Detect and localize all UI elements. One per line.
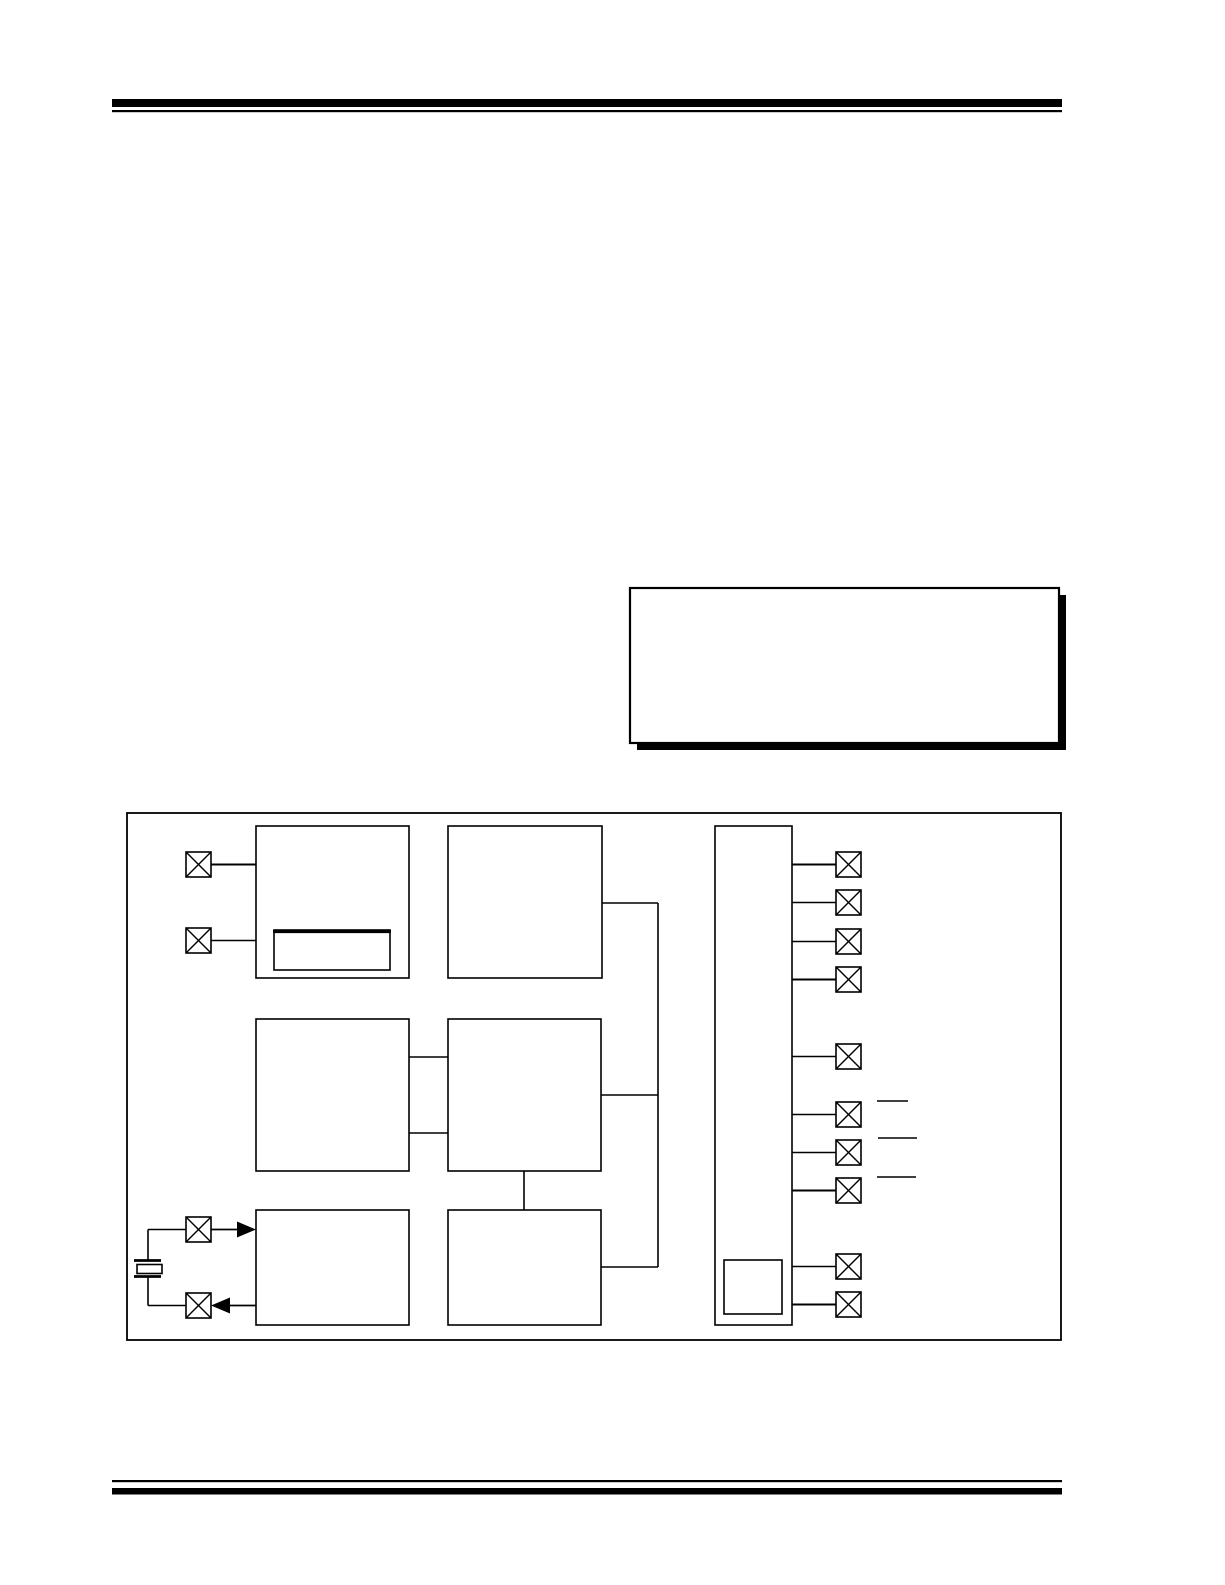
header-rule-thick [112, 99, 1062, 107]
footer-rule-thin [112, 1480, 1062, 1482]
pin-pad-right-6 [836, 1102, 861, 1127]
pin-pad-right-5 [836, 1044, 861, 1069]
pin-pad-right-9 [836, 1254, 861, 1279]
pin-pad-left-2 [186, 928, 211, 953]
figure-canvas [0, 0, 1225, 1585]
block-tall-right-subblock [724, 1260, 782, 1314]
block-mid-middle [448, 1019, 601, 1171]
arrowhead-into-xtalpad2 [211, 1298, 230, 1314]
pin-pad-right-3 [836, 929, 861, 954]
crystal-body [137, 1265, 162, 1274]
footer-rule-thick [112, 1488, 1062, 1495]
block-bottom-middle [448, 1210, 601, 1325]
figure-frame [127, 813, 1061, 1340]
pin-pad-right-10 [836, 1292, 861, 1317]
block-mid-left [256, 1019, 409, 1171]
pin-pad-right-4 [836, 967, 861, 992]
note-box [630, 588, 1059, 743]
page [0, 0, 1225, 1585]
pin-pad-right-8 [836, 1178, 861, 1203]
block-top-left [256, 826, 409, 978]
pin-pad-right-7 [836, 1140, 861, 1165]
pin-pad-left-1 [186, 852, 211, 877]
block-bottom-left [256, 1210, 409, 1325]
block-top-left-subblock [274, 930, 390, 970]
pin-pad-left-4 [186, 1293, 211, 1318]
header-rule-thin [112, 110, 1062, 112]
pin-pad-right-2 [836, 890, 861, 915]
pin-pad-right-1 [836, 852, 861, 877]
block-tall-right [715, 826, 792, 1325]
arrowhead-into-block-bottom-left [237, 1222, 256, 1238]
pin-pad-left-3 [186, 1217, 211, 1242]
block-top-middle [448, 826, 602, 978]
